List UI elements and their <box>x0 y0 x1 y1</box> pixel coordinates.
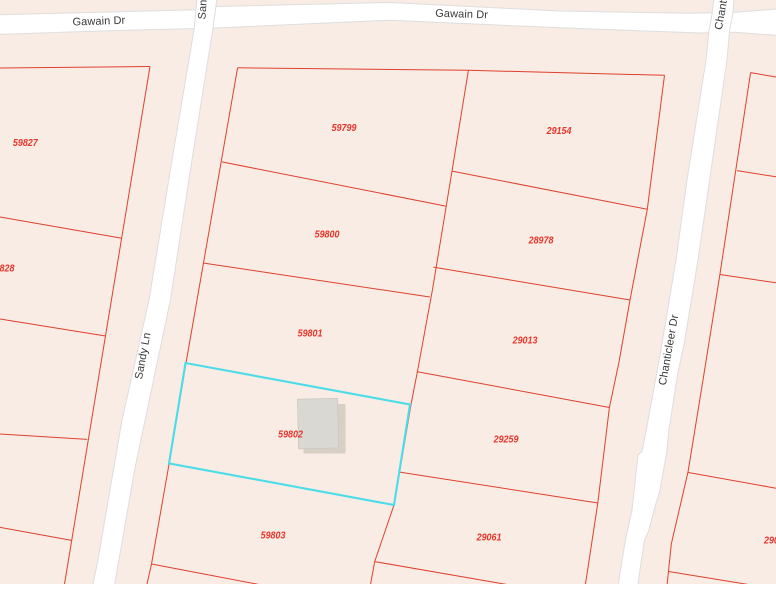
svg-text:29061: 29061 <box>476 532 502 544</box>
svg-text:59803: 59803 <box>261 530 286 542</box>
svg-text:59801: 59801 <box>298 328 323 340</box>
svg-text:29154: 29154 <box>546 125 572 137</box>
svg-text:59799: 59799 <box>332 122 357 134</box>
svg-text:29013: 29013 <box>512 335 538 347</box>
svg-text:59827: 59827 <box>13 138 38 150</box>
svg-text:59828: 59828 <box>0 263 15 275</box>
svg-text:Gawain Dr: Gawain Dr <box>72 15 125 29</box>
svg-text:59800: 59800 <box>315 229 340 241</box>
svg-text:29259: 29259 <box>493 434 519 446</box>
svg-text:Gawain Dr: Gawain Dr <box>435 8 488 22</box>
svg-text:59802: 59802 <box>278 429 303 441</box>
svg-text:29045: 29045 <box>763 535 776 547</box>
svg-text:28978: 28978 <box>528 235 554 247</box>
